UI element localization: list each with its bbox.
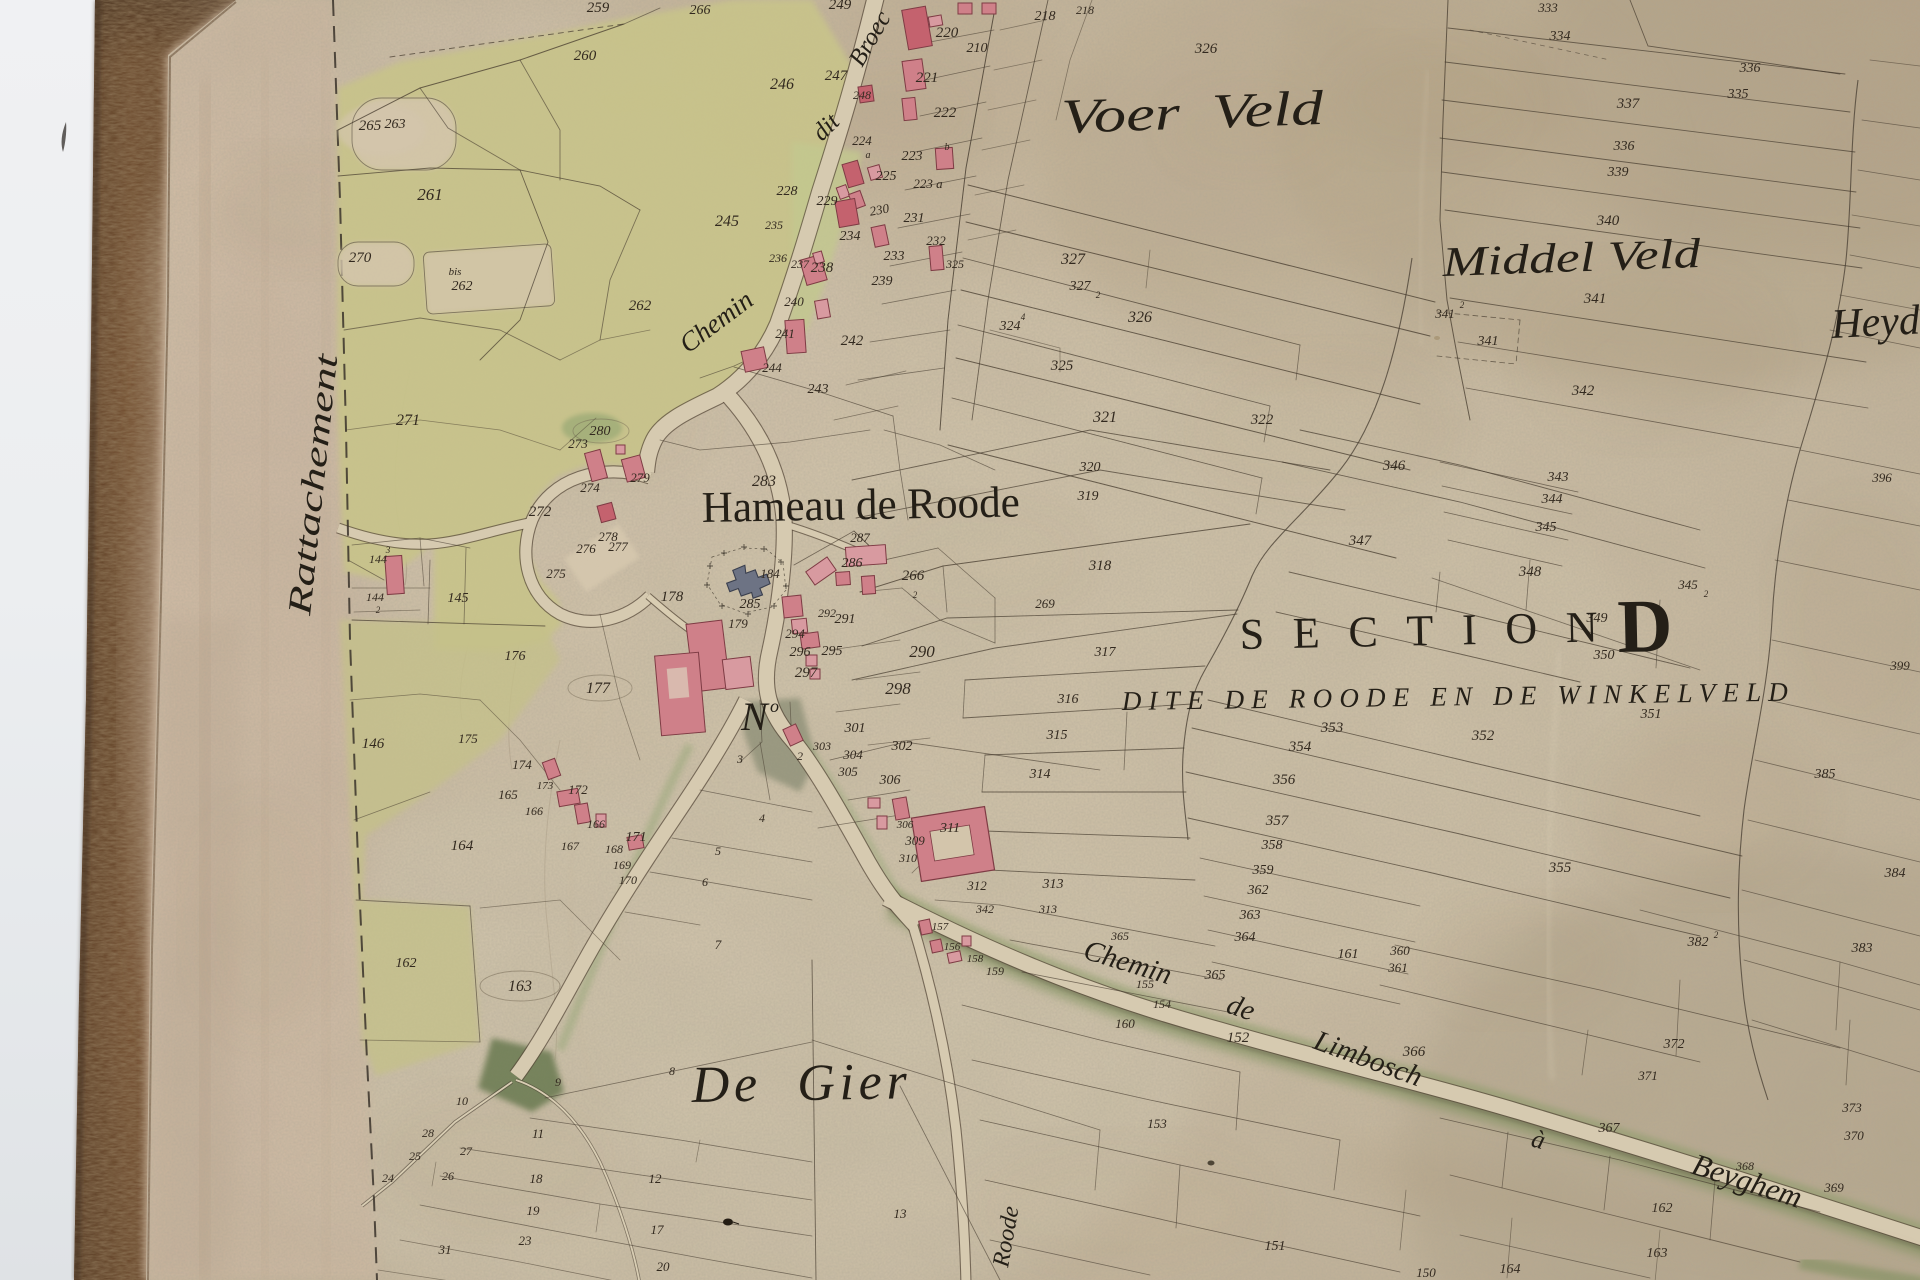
svg-text:10: 10 — [456, 1094, 468, 1108]
svg-text:302: 302 — [891, 739, 913, 754]
svg-text:275: 275 — [546, 566, 566, 581]
svg-text:146: 146 — [362, 736, 385, 752]
svg-text:325: 325 — [945, 257, 964, 271]
svg-text:18: 18 — [530, 1171, 544, 1186]
svg-text:221: 221 — [916, 70, 939, 86]
svg-text:175: 175 — [458, 731, 478, 746]
svg-text:a: a — [866, 150, 871, 161]
svg-text:314: 314 — [1029, 767, 1051, 782]
svg-text:327: 327 — [1060, 251, 1086, 268]
svg-text:279: 279 — [630, 470, 650, 485]
svg-text:269: 269 — [1035, 596, 1055, 611]
svg-text:274: 274 — [580, 480, 600, 495]
svg-text:N: N — [740, 694, 770, 739]
svg-text:246: 246 — [770, 76, 794, 93]
svg-text:173: 173 — [537, 780, 554, 792]
svg-text:184: 184 — [760, 566, 780, 581]
svg-text:168: 168 — [605, 842, 623, 856]
svg-text:25: 25 — [409, 1149, 421, 1163]
svg-text:385: 385 — [1814, 767, 1836, 782]
svg-text:360: 360 — [1389, 943, 1410, 958]
svg-text:27: 27 — [460, 1144, 473, 1158]
svg-text:396: 396 — [1871, 470, 1892, 485]
svg-text:159: 159 — [986, 964, 1004, 978]
svg-text:337: 337 — [1616, 96, 1641, 112]
svg-text:273: 273 — [568, 436, 588, 451]
svg-text:164: 164 — [1500, 1262, 1521, 1277]
svg-text:347: 347 — [1348, 533, 1373, 549]
svg-text:327: 327 — [1069, 279, 1092, 294]
svg-text:228: 228 — [777, 184, 798, 199]
svg-text:292: 292 — [818, 606, 836, 620]
svg-text:b: b — [945, 142, 950, 153]
svg-text:365: 365 — [1204, 968, 1226, 983]
svg-text:242: 242 — [841, 333, 864, 349]
svg-text:266: 266 — [902, 568, 925, 584]
svg-text:318: 318 — [1088, 558, 1112, 574]
svg-text:367: 367 — [1598, 1121, 1621, 1136]
svg-text:D: D — [1617, 584, 1674, 669]
svg-text:166: 166 — [587, 817, 605, 831]
svg-text:167: 167 — [561, 839, 580, 853]
svg-text:364: 364 — [1234, 930, 1256, 945]
svg-text:2: 2 — [1714, 930, 1719, 940]
svg-text:341: 341 — [1434, 306, 1455, 321]
svg-text:231: 231 — [904, 211, 925, 226]
svg-text:324: 324 — [999, 319, 1021, 334]
svg-text:333: 333 — [1537, 0, 1558, 15]
svg-text:283: 283 — [752, 473, 776, 490]
svg-text:28: 28 — [422, 1126, 434, 1140]
svg-text:285: 285 — [740, 597, 761, 612]
svg-text:357: 357 — [1265, 813, 1290, 829]
svg-text:179: 179 — [728, 616, 748, 631]
svg-text:340: 340 — [1596, 213, 1620, 229]
svg-text:241: 241 — [775, 326, 795, 341]
svg-text:239: 239 — [872, 274, 893, 289]
svg-text:144: 144 — [366, 590, 384, 604]
svg-text:150: 150 — [1416, 1265, 1436, 1280]
svg-text:310: 310 — [898, 851, 917, 865]
svg-text:356: 356 — [1272, 772, 1296, 788]
svg-text:287: 287 — [850, 530, 870, 545]
svg-text:342: 342 — [1571, 383, 1595, 399]
svg-text:322: 322 — [1250, 412, 1274, 428]
svg-text:291: 291 — [835, 612, 856, 627]
svg-text:358: 358 — [1261, 838, 1283, 853]
svg-text:313: 313 — [1038, 902, 1057, 916]
svg-text:262: 262 — [452, 279, 473, 294]
svg-text:19: 19 — [527, 1203, 541, 1218]
svg-text:235: 235 — [765, 218, 783, 232]
svg-text:31: 31 — [438, 1242, 452, 1257]
svg-text:222: 222 — [934, 105, 957, 121]
svg-text:240: 240 — [784, 294, 804, 309]
svg-text:370: 370 — [1843, 1128, 1864, 1143]
svg-text:3: 3 — [385, 545, 391, 555]
svg-text:353: 353 — [1320, 720, 1344, 736]
svg-text:229: 229 — [817, 194, 838, 209]
svg-text:12: 12 — [649, 1171, 663, 1186]
svg-text:169: 169 — [613, 858, 631, 872]
svg-text:158: 158 — [967, 953, 984, 965]
svg-text:Voer Veld: Voer Veld — [1060, 80, 1324, 144]
svg-text:154: 154 — [1153, 997, 1171, 1011]
svg-text:236: 236 — [769, 251, 787, 265]
svg-text:bis: bis — [449, 266, 462, 278]
svg-text:23: 23 — [519, 1233, 533, 1248]
svg-text:343: 343 — [1547, 470, 1569, 485]
svg-text:359: 359 — [1252, 863, 1274, 878]
svg-text:305: 305 — [837, 764, 858, 779]
svg-text:165: 165 — [498, 787, 518, 802]
svg-text:271: 271 — [396, 412, 420, 429]
svg-text:4: 4 — [1021, 312, 1026, 322]
svg-text:2: 2 — [797, 749, 803, 763]
svg-text:325: 325 — [1050, 358, 1074, 374]
svg-text:o: o — [770, 696, 779, 716]
svg-text:362: 362 — [1247, 883, 1269, 898]
svg-text:373: 373 — [1841, 1100, 1862, 1115]
svg-text:263: 263 — [385, 117, 406, 132]
svg-text:144: 144 — [369, 552, 387, 566]
svg-text:174: 174 — [512, 757, 532, 772]
svg-text:399: 399 — [1889, 658, 1910, 673]
svg-text:319: 319 — [1077, 489, 1099, 504]
svg-text:17: 17 — [651, 1222, 665, 1237]
svg-text:5: 5 — [715, 844, 721, 858]
svg-text:232: 232 — [926, 233, 946, 248]
svg-text:335: 335 — [1727, 87, 1749, 102]
svg-text:334: 334 — [1549, 29, 1571, 44]
svg-text:Heyd: Heyd — [1829, 297, 1920, 348]
svg-text:339: 339 — [1607, 165, 1629, 180]
svg-text:321: 321 — [1092, 409, 1117, 426]
svg-text:162: 162 — [396, 956, 417, 971]
svg-text:270: 270 — [349, 250, 372, 266]
svg-text:234: 234 — [840, 229, 861, 244]
svg-text:218: 218 — [1035, 9, 1056, 24]
svg-text:306: 306 — [879, 773, 901, 788]
svg-text:382: 382 — [1687, 935, 1709, 950]
svg-text:342: 342 — [975, 902, 994, 916]
svg-text:313: 313 — [1042, 877, 1064, 892]
svg-text:260: 260 — [574, 48, 597, 64]
svg-text:152: 152 — [1227, 1030, 1250, 1046]
svg-text:312: 312 — [966, 878, 987, 893]
svg-text:244: 244 — [762, 360, 782, 375]
svg-text:341: 341 — [1477, 334, 1499, 349]
svg-text:316: 316 — [1057, 692, 1079, 707]
svg-text:245: 245 — [715, 213, 739, 230]
svg-text:304: 304 — [842, 747, 863, 762]
svg-text:160: 160 — [1115, 1016, 1135, 1031]
svg-text:363: 363 — [1239, 908, 1261, 923]
svg-text:249: 249 — [829, 0, 852, 13]
svg-text:276: 276 — [576, 541, 596, 556]
svg-text:326: 326 — [1194, 41, 1218, 57]
svg-text:163: 163 — [508, 978, 532, 995]
svg-text:296: 296 — [790, 645, 811, 660]
svg-text:224: 224 — [852, 133, 872, 148]
svg-text:176: 176 — [505, 649, 526, 664]
svg-text:277: 277 — [608, 539, 628, 554]
svg-text:237: 237 — [791, 257, 810, 271]
svg-text:303: 303 — [812, 739, 831, 753]
svg-text:294: 294 — [785, 626, 805, 641]
svg-text:280: 280 — [590, 424, 611, 439]
svg-text:170: 170 — [619, 873, 637, 887]
svg-text:371: 371 — [1637, 1068, 1658, 1083]
svg-text:383: 383 — [1851, 941, 1873, 956]
svg-text:163: 163 — [1647, 1246, 1668, 1261]
svg-text:372: 372 — [1663, 1037, 1685, 1052]
svg-text:161: 161 — [1338, 947, 1359, 962]
svg-text:De Gier: De Gier — [690, 1053, 908, 1114]
svg-text:346: 346 — [1382, 458, 1406, 474]
svg-text:153: 153 — [1147, 1116, 1167, 1131]
svg-text:248: 248 — [853, 88, 871, 102]
svg-text:210: 210 — [967, 41, 988, 56]
svg-text:11: 11 — [532, 1126, 544, 1141]
svg-text:345: 345 — [1677, 577, 1698, 592]
svg-text:320: 320 — [1079, 460, 1101, 475]
svg-text:315: 315 — [1046, 728, 1068, 743]
svg-text:6: 6 — [702, 875, 708, 889]
svg-text:295: 295 — [822, 644, 843, 659]
svg-text:345: 345 — [1535, 520, 1557, 535]
svg-text:166: 166 — [525, 804, 543, 818]
svg-text:336: 336 — [1613, 139, 1635, 154]
svg-text:156: 156 — [944, 941, 961, 953]
svg-text:301: 301 — [844, 721, 866, 736]
svg-text:2: 2 — [1096, 290, 1101, 300]
svg-text:223 a: 223 a — [913, 176, 943, 191]
svg-text:2: 2 — [376, 605, 381, 615]
svg-text:26: 26 — [442, 1169, 454, 1183]
svg-text:2: 2 — [1460, 300, 1465, 310]
svg-text:218: 218 — [1076, 3, 1094, 17]
svg-text:261: 261 — [417, 185, 443, 204]
svg-text:171: 171 — [626, 830, 647, 845]
svg-text:238: 238 — [811, 260, 834, 276]
svg-text:Hameau de Roode: Hameau de Roode — [701, 477, 1020, 532]
svg-text:7: 7 — [715, 937, 722, 952]
svg-text:8: 8 — [669, 1064, 675, 1078]
svg-text:317: 317 — [1094, 645, 1117, 660]
svg-text:384: 384 — [1884, 866, 1906, 881]
svg-text:348: 348 — [1518, 564, 1542, 580]
svg-text:223: 223 — [902, 149, 923, 164]
svg-text:369: 369 — [1823, 1180, 1844, 1195]
svg-text:351: 351 — [1640, 707, 1662, 722]
svg-text:164: 164 — [451, 838, 474, 854]
svg-text:233: 233 — [884, 249, 905, 264]
svg-text:225: 225 — [876, 169, 897, 184]
svg-text:297: 297 — [795, 665, 819, 681]
svg-text:2: 2 — [1704, 589, 1709, 599]
svg-text:20: 20 — [657, 1259, 671, 1274]
svg-text:309: 309 — [904, 833, 925, 848]
svg-text:220: 220 — [936, 25, 959, 41]
svg-text:298: 298 — [885, 679, 911, 698]
svg-text:341: 341 — [1583, 291, 1607, 307]
svg-text:172: 172 — [568, 782, 588, 797]
svg-text:2: 2 — [913, 590, 918, 600]
svg-text:177: 177 — [586, 680, 611, 697]
svg-text:311: 311 — [939, 821, 960, 836]
svg-text:178: 178 — [661, 589, 684, 605]
svg-text:3: 3 — [736, 752, 743, 766]
svg-text:354: 354 — [1288, 739, 1312, 755]
svg-text:266: 266 — [690, 3, 711, 18]
svg-text:151: 151 — [1265, 1239, 1286, 1254]
svg-text:259: 259 — [587, 0, 610, 16]
svg-text:272: 272 — [529, 504, 552, 520]
svg-text:355: 355 — [1548, 860, 1572, 876]
svg-text:262: 262 — [629, 298, 652, 314]
svg-text:243: 243 — [808, 382, 829, 397]
svg-text:344: 344 — [1541, 492, 1563, 507]
svg-text:9: 9 — [555, 1075, 561, 1089]
svg-text:361: 361 — [1387, 960, 1408, 975]
svg-text:326: 326 — [1127, 309, 1152, 326]
svg-text:13: 13 — [894, 1206, 908, 1221]
svg-text:247: 247 — [825, 68, 849, 84]
svg-text:265: 265 — [359, 118, 382, 134]
svg-text:145: 145 — [448, 591, 469, 606]
svg-text:4: 4 — [759, 811, 765, 825]
svg-text:Middel Veld: Middel Veld — [1440, 231, 1702, 286]
svg-text:306: 306 — [896, 819, 914, 831]
svg-text:336: 336 — [1739, 61, 1761, 76]
svg-text:157: 157 — [932, 921, 949, 933]
svg-text:290: 290 — [909, 642, 935, 661]
svg-text:286: 286 — [842, 556, 863, 571]
svg-text:352: 352 — [1471, 728, 1495, 744]
svg-text:24: 24 — [382, 1171, 394, 1185]
